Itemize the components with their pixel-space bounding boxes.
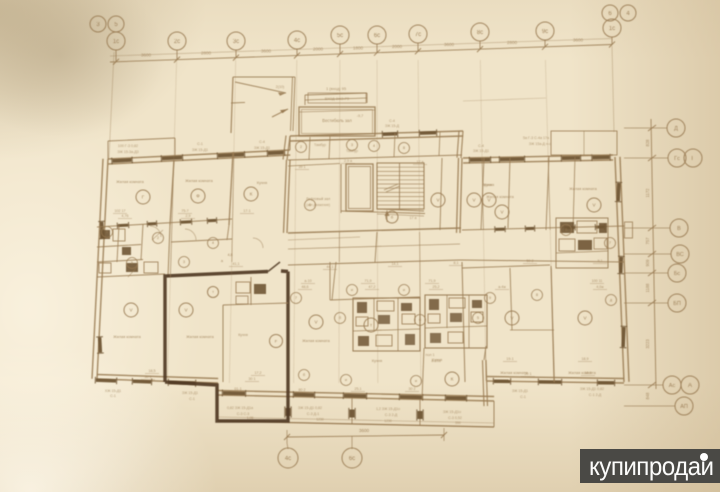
svg-text:а-4ж: а-4ж (498, 285, 506, 289)
svg-text:4: 4 (212, 241, 214, 245)
svg-text:102 17: 102 17 (115, 209, 126, 213)
svg-text:6: 6 (608, 11, 612, 17)
svg-text:б: б (419, 318, 421, 322)
svg-text:6: 6 (309, 203, 311, 207)
svg-text:4,0ж: 4,0ж (596, 285, 604, 289)
svg-text:9,1: 9,1 (598, 259, 603, 263)
svg-text:7: 7 (295, 296, 297, 300)
svg-text:ЗЖ 15-Д1: ЗЖ 15-Д1 (512, 389, 528, 393)
svg-text:Вестибюль зал: Вестибюль зал (322, 118, 352, 123)
svg-text:Гс: Гс (674, 156, 680, 162)
svg-text:С-4: С-4 (389, 119, 395, 123)
svg-text:т: т (370, 323, 372, 328)
svg-text:V: V (583, 316, 586, 321)
svg-text:3223: 3223 (645, 339, 650, 349)
svg-text:С-3 Д-1: С-3 Д-1 (307, 412, 319, 416)
svg-text:1172: 1172 (645, 188, 650, 198)
svg-text:2000: 2000 (313, 47, 324, 52)
svg-text:17 а: 17 а (410, 216, 417, 220)
svg-text:Кухня: Кухня (484, 183, 494, 187)
svg-text:Лифтовый зал: Лифтовый зал (306, 197, 330, 201)
svg-text:8,1: 8,1 (454, 261, 459, 265)
svg-text:ЗЖ 15-Д: ЗЖ 15-Д (385, 124, 400, 128)
svg-text:4,76: 4,76 (122, 214, 129, 218)
svg-text:3600: 3600 (359, 428, 370, 433)
svg-text:ЗЖ 15-Д1: ЗЖ 15-Д1 (473, 149, 489, 153)
svg-text:1,2 ЗЖ 15-Д1о: 1,2 ЗЖ 15-Д1о (376, 407, 400, 411)
svg-text:2: 2 (157, 236, 159, 240)
svg-text:б: б (565, 228, 567, 232)
svg-text:4с: 4с (294, 38, 300, 44)
svg-text:7: 7 (609, 241, 611, 245)
svg-text:Ас: Ас (669, 383, 676, 389)
svg-text:V: V (592, 203, 595, 208)
svg-text:V: V (472, 198, 475, 203)
svg-text:V: V (184, 308, 187, 313)
svg-text:71,9: 71,9 (365, 279, 372, 283)
svg-text:1 (вход) 95: 1 (вход) 95 (326, 86, 347, 91)
svg-text:а-10а: а-10а (431, 359, 440, 363)
svg-text:17,2: 17,2 (255, 371, 262, 375)
svg-text:48,6: 48,6 (302, 285, 309, 289)
svg-text:8: 8 (536, 293, 538, 297)
svg-text:Тамбур: Тамбур (346, 149, 358, 153)
svg-text:и: и (403, 288, 405, 292)
svg-text:С-3 С-3: С-3 С-3 (237, 412, 250, 416)
svg-text:и: и (351, 288, 353, 292)
svg-text:2с: 2с (174, 39, 180, 45)
svg-text:V: V (129, 308, 132, 313)
svg-text:1с: 1с (609, 26, 615, 32)
svg-text:ЗЖ 15-Д1: ЗЖ 15-Д1 (254, 146, 270, 150)
svg-text:3: 3 (183, 260, 185, 264)
svg-text:2800: 2800 (507, 40, 518, 45)
svg-text:8: 8 (403, 146, 405, 150)
svg-text:и: и (415, 379, 417, 383)
svg-text:909: 909 (645, 259, 650, 267)
svg-text:5: 5 (114, 22, 118, 28)
svg-text:В: В (677, 226, 681, 232)
svg-text:Г: Г (691, 156, 695, 162)
svg-text:Жилая комната: Жилая комната (185, 179, 213, 183)
svg-text:9: 9 (489, 296, 491, 300)
svg-text:4: 4 (626, 11, 630, 17)
svg-text:18,9: 18,9 (582, 357, 589, 361)
svg-text:757: 757 (645, 237, 650, 245)
svg-text:5с: 5с (337, 33, 343, 39)
svg-text:590: 590 (455, 421, 461, 425)
svg-text:17 а: 17 а (417, 160, 424, 164)
svg-text:А: А (688, 383, 692, 389)
svg-text:Д: Д (674, 126, 678, 132)
svg-text:75-7: 75-7 (181, 209, 188, 213)
svg-text:5а Г-3 С-4а 17а: 5а Г-3 С-4а 17а (523, 136, 549, 140)
svg-text:3600: 3600 (444, 42, 455, 47)
svg-text:С-1: С-1 (110, 394, 116, 398)
svg-text:30 2: 30 2 (409, 387, 416, 391)
svg-text:4с: 4с (285, 456, 291, 462)
svg-text:1188: 1188 (645, 283, 650, 293)
svg-text:ЗЖ 15-Д1 0,82: ЗЖ 15-Д1 0,82 (580, 387, 604, 391)
svg-text:Жилая комната: Жилая комната (486, 195, 514, 199)
svg-text:9с: 9с (542, 29, 548, 35)
svg-text:18,9: 18,9 (585, 371, 592, 375)
svg-text:3600: 3600 (261, 49, 272, 54)
svg-text:80 2: 80 2 (299, 388, 306, 392)
svg-text:Бс: Бс (674, 271, 681, 277)
svg-text:С-1: С-1 (189, 397, 195, 401)
svg-text:2800: 2800 (201, 51, 212, 56)
svg-text:С-4: С-4 (478, 144, 484, 148)
svg-text:4: 4 (373, 144, 375, 148)
svg-text:2: 2 (300, 145, 302, 149)
svg-text:С-4: С-4 (259, 140, 265, 144)
svg-text:2(10): 2(10) (276, 85, 284, 89)
svg-text:Жилая комната: Жилая комната (116, 180, 144, 184)
svg-text:ЗЖ 15-Д1о: ЗЖ 15-Д1о (443, 410, 461, 414)
svg-text:8с: 8с (477, 30, 483, 36)
svg-text:F: F (275, 338, 278, 343)
svg-text:Жилая комната: Жилая комната (568, 371, 596, 375)
svg-text:01-1: 01-1 (234, 387, 241, 391)
svg-text:С-3 0,52: С-3 0,52 (448, 416, 462, 420)
svg-text:К: К (250, 192, 253, 197)
svg-text:Жилая комната: Жилая комната (113, 335, 141, 339)
svg-text:ЗЖ 15-3а-Д3: ЗЖ 15-3а-Д3 (117, 150, 138, 154)
svg-text:17-1: 17-1 (243, 209, 250, 213)
svg-text:0,82 ЗЖ 15-Д1а: 0,82 ЗЖ 15-Д1а (227, 406, 253, 410)
svg-text:С-1: С-1 (197, 142, 203, 146)
svg-text:50 2: 50 2 (527, 259, 534, 263)
svg-text:пол 1: пол 1 (426, 353, 435, 357)
svg-text:а: а (221, 259, 223, 263)
svg-text:18,5: 18,5 (149, 369, 156, 373)
svg-text:25,2: 25,2 (433, 285, 440, 289)
svg-text:7с: 7с (415, 32, 421, 38)
svg-text:100 11: 100 11 (592, 279, 603, 283)
svg-text:С-1 2-Д: С-1 2-Д (589, 393, 602, 397)
svg-text:ЗЖ 15-Д1: ЗЖ 15-Д1 (182, 391, 198, 395)
svg-text:6с: 6с (374, 33, 380, 39)
svg-text:3600: 3600 (141, 53, 152, 58)
svg-text:30 1: 30 1 (249, 377, 256, 381)
svg-text:1: 1 (106, 230, 108, 234)
svg-text:30 1: 30 1 (145, 375, 152, 379)
svg-text:6с: 6с (349, 456, 355, 462)
svg-text:828: 828 (645, 139, 650, 147)
svg-text:14,1: 14,1 (392, 262, 399, 266)
svg-text:848: 848 (645, 392, 650, 400)
svg-text:Жилая комната: Жилая комната (186, 335, 214, 339)
svg-text:47,2: 47,2 (369, 285, 376, 289)
svg-text:25,1: 25,1 (355, 387, 362, 391)
svg-text:ВХОД-ЗЖЗ-РЗ: ВХОД-ЗЖЗ-РЗ (325, 97, 349, 101)
svg-text:ХЖ 15-Д1: ХЖ 15-Д1 (105, 389, 121, 393)
svg-text:39 1: 39 1 (299, 165, 306, 169)
svg-text:ВС: ВС (676, 252, 683, 258)
svg-text:т: т (212, 290, 214, 294)
svg-text:19-1: 19-1 (506, 357, 513, 361)
svg-text:5: 5 (131, 261, 133, 265)
svg-text:20 1: 20 1 (525, 372, 532, 376)
svg-text:С-1: С-1 (520, 395, 526, 399)
svg-text:а-10: а-10 (304, 279, 311, 283)
svg-text:-9,7: -9,7 (357, 114, 364, 118)
svg-text:Жилая комната: Жилая комната (569, 187, 597, 191)
svg-text:АП: АП (680, 404, 688, 410)
svg-text:V: V (436, 198, 439, 203)
svg-text:2000: 2000 (392, 44, 403, 49)
svg-text:41,1: 41,1 (233, 262, 240, 266)
svg-text:3: 3 (351, 143, 353, 147)
svg-text:ЗЖ 15-Д1 0,82: ЗЖ 15-Д1 0,82 (298, 406, 322, 410)
svg-text:БП: БП (673, 301, 681, 307)
svg-text:1230: 1230 (384, 419, 392, 423)
svg-text:V: V (510, 316, 513, 321)
svg-text:К: К (451, 377, 454, 382)
svg-text:Кухня: Кухня (257, 181, 267, 185)
svg-text:С-3 2-Д: С-3 2-Д (385, 413, 398, 417)
svg-text:Кухня: Кухня (238, 333, 248, 337)
svg-text:V: V (314, 320, 317, 325)
svg-text:1с: 1с (113, 39, 119, 45)
svg-text:Г: Г (142, 195, 145, 200)
svg-text:б: б (391, 214, 394, 219)
svg-text:ЗЖ 15-Д1: ЗЖ 15-Д1 (192, 148, 208, 152)
svg-text:1800: 1800 (353, 45, 364, 50)
svg-text:1230: 1230 (316, 418, 324, 422)
svg-text:44,1: 44,1 (327, 265, 334, 269)
svg-text:Тамбур: Тамбур (314, 143, 326, 147)
svg-text:и: и (345, 378, 347, 382)
svg-text:V: V (500, 210, 503, 215)
svg-text:Жилая комната: Жилая комната (302, 339, 330, 343)
svg-text:3: 3 (96, 22, 100, 28)
svg-text:2,9: 2,9 (186, 214, 191, 218)
svg-text:3с: 3с (233, 39, 239, 45)
svg-text:3600: 3600 (573, 38, 584, 43)
svg-text:Ф: Ф (196, 194, 200, 199)
svg-text:71,9: 71,9 (429, 279, 436, 283)
svg-text:б: б (303, 373, 305, 377)
svg-text:Кухня: Кухня (372, 359, 382, 363)
svg-text:д: д (610, 298, 612, 302)
svg-text:2,9 а: 2,9 а (344, 159, 352, 163)
svg-text:100 Г-3 0,82: 100 Г-3 0,82 (118, 144, 138, 148)
svg-text:5: 5 (477, 316, 479, 320)
